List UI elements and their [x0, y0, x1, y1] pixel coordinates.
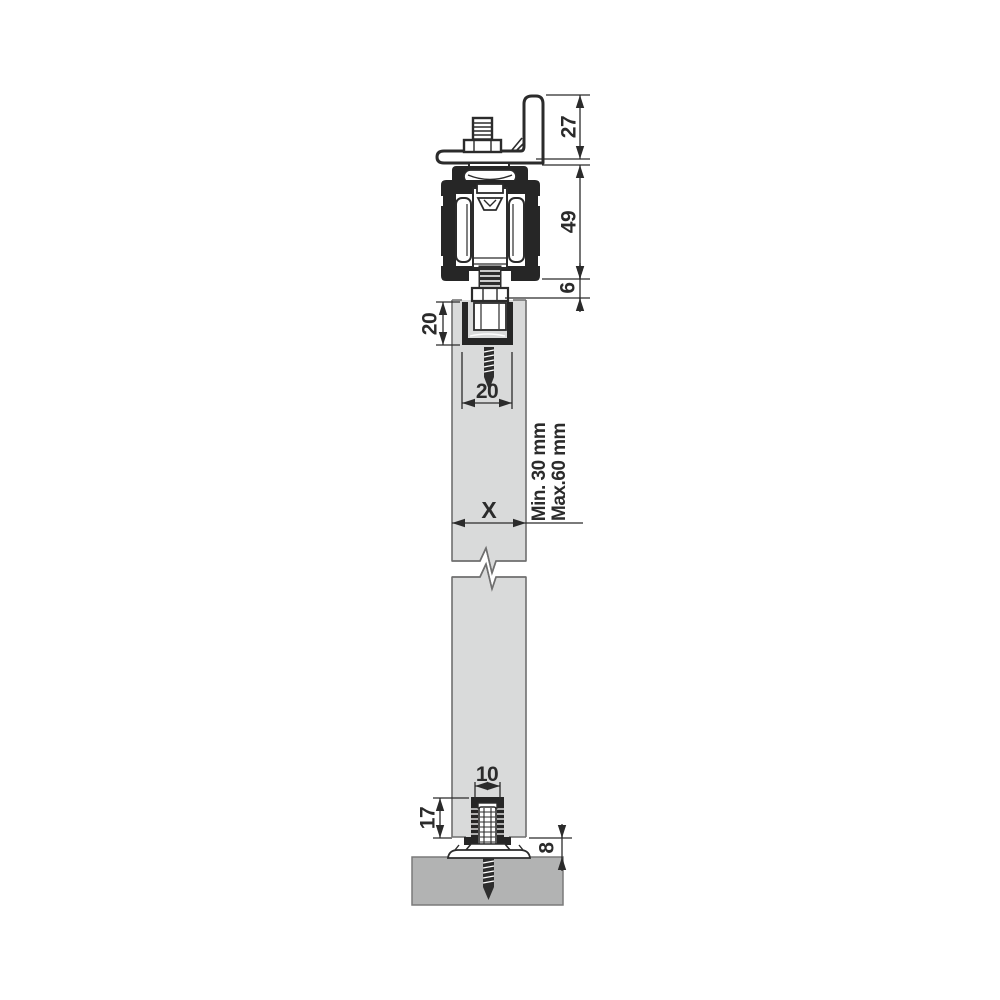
sliding-door-fitting-diagram: 27 49 6 20 20 X Min. 30 mm Max.60 mm 10 …	[0, 0, 1000, 1000]
adjustment-nut	[472, 288, 508, 301]
channel-hanger-block	[474, 303, 506, 330]
technical-drawing-page: 27 49 6 20 20 X Min. 30 mm Max.60 mm 10 …	[0, 0, 1000, 1000]
roller-carriage	[456, 184, 524, 268]
dim-floor-clearance: 8	[536, 842, 559, 854]
profile-notch	[439, 256, 443, 266]
profile-notch	[439, 196, 443, 206]
dim-bottom-groove-width: 10	[476, 763, 498, 786]
dim-door-thickness: X	[481, 497, 497, 523]
side-wheel-right	[509, 198, 524, 262]
dim-bottom-guide-depth: 17	[417, 807, 440, 829]
profile-notch	[538, 256, 542, 266]
dim-top-channel-depth: 20	[419, 313, 442, 335]
carriage-clamp	[477, 184, 503, 193]
suspension-bolt	[472, 266, 508, 301]
side-wheel-left	[456, 198, 471, 262]
dim-door-thickness-min: Min. 30 mm	[529, 423, 550, 521]
dim-bracket-height: 27	[558, 116, 581, 138]
dim-door-thickness-max: Max.60 mm	[549, 423, 570, 521]
dim-top-channel-width: 20	[476, 380, 498, 403]
profile-notch	[538, 196, 542, 206]
guide-pin	[478, 803, 497, 846]
dim-track-height: 49	[558, 211, 581, 233]
door-panel-lower	[452, 564, 526, 837]
bolt-hex-nut	[464, 140, 501, 152]
floor-guide-base	[448, 844, 530, 858]
dim-clearance-under-track: 6	[557, 282, 580, 293]
